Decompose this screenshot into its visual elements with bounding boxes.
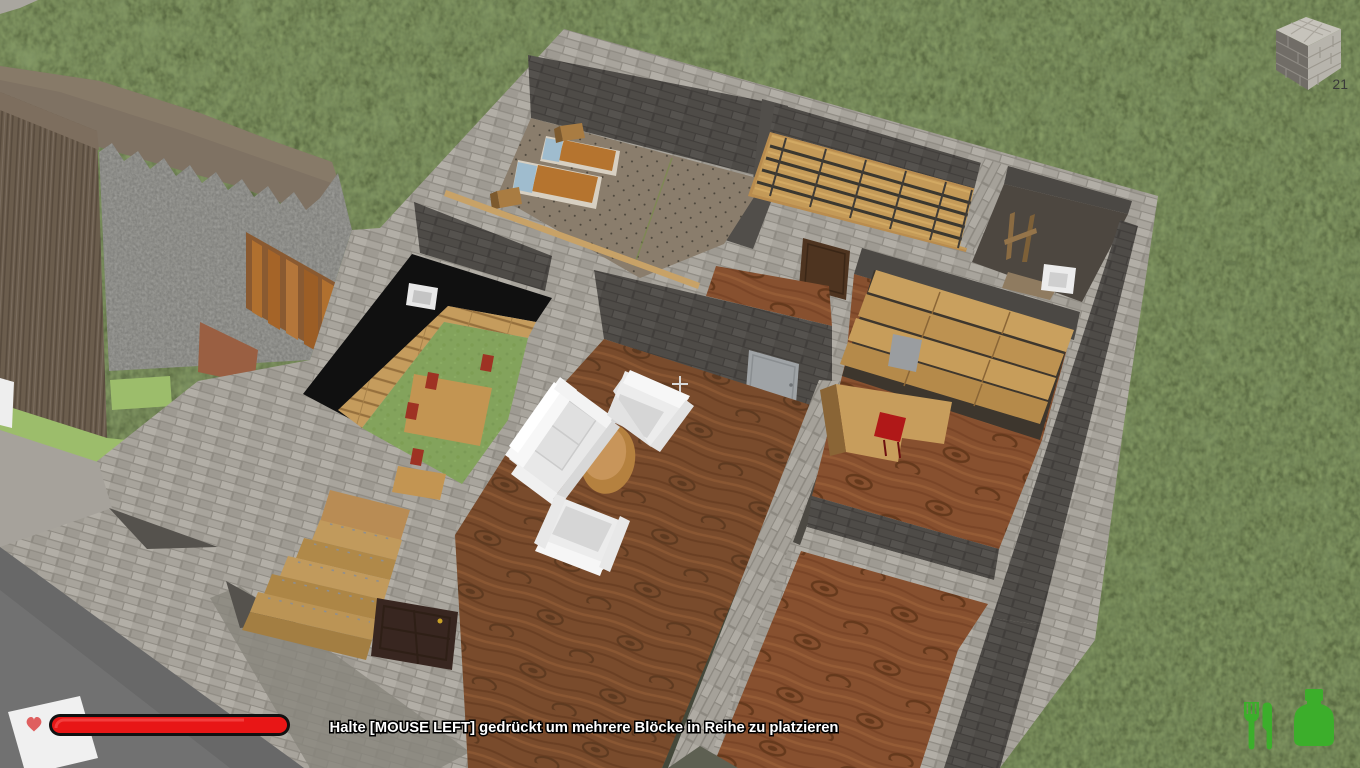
svg-text:Halte [MOUSE LEFT] gedrückt um: Halte [MOUSE LEFT] gedrückt um mehrere B… xyxy=(330,720,839,736)
svg-text:21: 21 xyxy=(1332,76,1348,92)
